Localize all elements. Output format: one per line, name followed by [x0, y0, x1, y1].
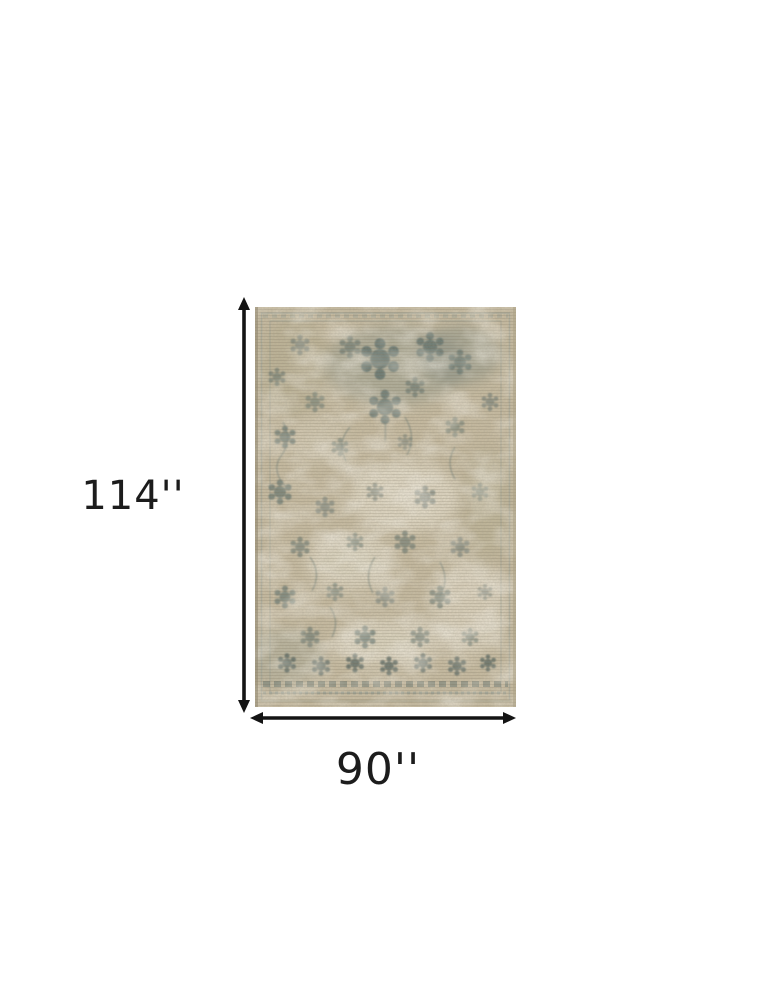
- rug-grain-overlay: [255, 307, 516, 707]
- rug-right-edge: [513, 307, 516, 707]
- rug-product-image: [255, 307, 516, 707]
- rug-left-edge: [255, 307, 258, 707]
- dimension-diagram-canvas: 114'' 90'': [0, 0, 767, 1000]
- width-dimension-label: 90'': [303, 744, 453, 796]
- height-dimension-label: 114'': [58, 472, 208, 520]
- width-dimension-arrow-icon: [249, 710, 517, 726]
- height-dimension-arrow-icon: [236, 296, 252, 714]
